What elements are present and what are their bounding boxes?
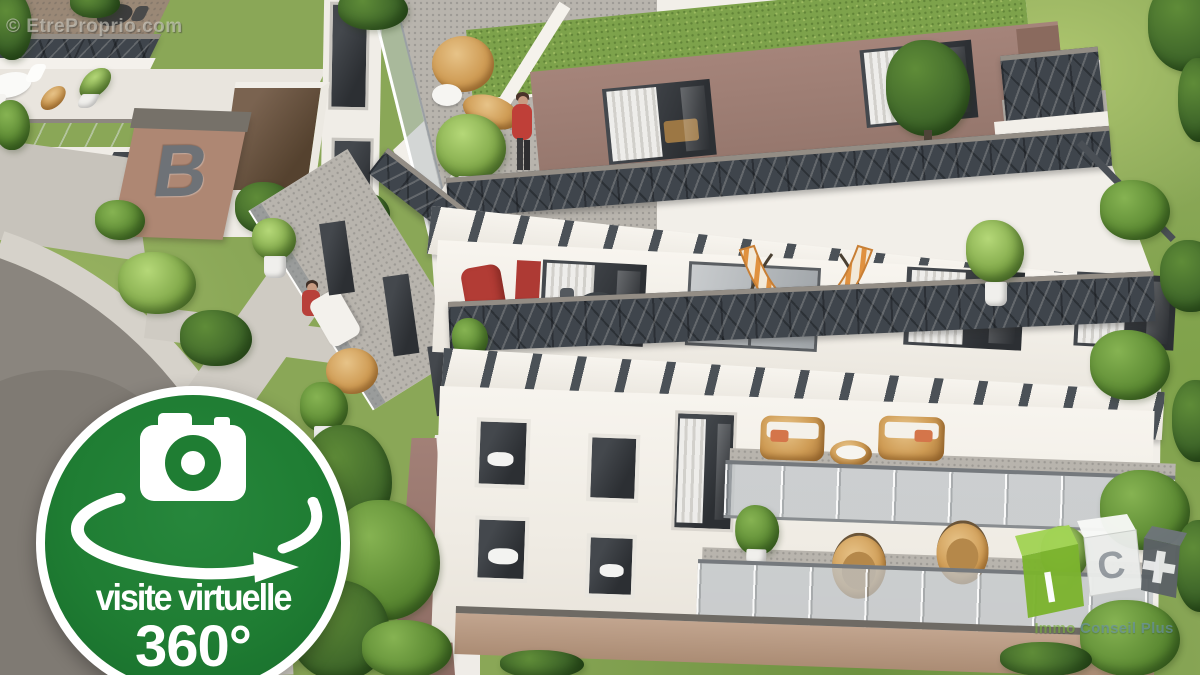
camera-flash [158, 413, 192, 427]
bush [1100, 180, 1170, 240]
plant-pot [264, 256, 286, 278]
architectural-rendering-scene: B [0, 0, 1200, 675]
palm-foliage [966, 220, 1024, 282]
bush [180, 310, 252, 366]
sink [487, 452, 513, 467]
bathtub [488, 548, 519, 565]
logo-cube-i: I [1015, 525, 1084, 618]
person-body [512, 104, 532, 140]
bush [1000, 642, 1092, 675]
camera-icon [140, 425, 246, 501]
rattan-sofa [760, 415, 825, 461]
brand-part-2: Conseil Plus [1080, 620, 1174, 637]
washbasin [599, 564, 623, 578]
camera-lens [165, 435, 221, 491]
interior-furniture [663, 118, 699, 143]
logo-letter-c: C [1095, 543, 1128, 588]
tree-foliage [886, 40, 970, 136]
plant-pot [985, 282, 1007, 306]
person-standing [504, 94, 540, 178]
rotation-arrow-icon [55, 493, 331, 587]
camera-lens-core [181, 451, 205, 475]
badge-subtitle: 360° [45, 613, 341, 675]
rooftop-plant [436, 114, 506, 180]
balcony-palm [966, 220, 1024, 312]
tree [362, 620, 452, 675]
camera-viewfinder [214, 417, 230, 425]
agency-logo: I C [1008, 512, 1200, 630]
watermark: © EtreProprio.com [6, 16, 183, 38]
bush [1090, 330, 1170, 400]
logo-cube-plus [1141, 526, 1187, 598]
window [585, 533, 637, 599]
rattan-sofa [878, 415, 945, 461]
terrace-plant [252, 218, 296, 260]
building-letter: B [118, 127, 244, 214]
penthouse-window [602, 79, 717, 165]
bathroom-window [474, 417, 530, 489]
side-table [432, 84, 462, 106]
person-legs [517, 138, 523, 170]
bush [500, 650, 584, 675]
bathroom-window [473, 515, 529, 583]
bush [118, 252, 196, 314]
person-legs [524, 140, 530, 170]
brand-part-1: Immo [1034, 620, 1075, 637]
logo-cube-c: C [1077, 514, 1142, 596]
bush [95, 200, 145, 240]
window [586, 433, 640, 503]
sofa-pillow [770, 430, 788, 443]
sofa-pillow [914, 430, 932, 443]
table-top [836, 445, 866, 460]
agency-brand-text: Immo Conseil Plus [1008, 620, 1200, 637]
